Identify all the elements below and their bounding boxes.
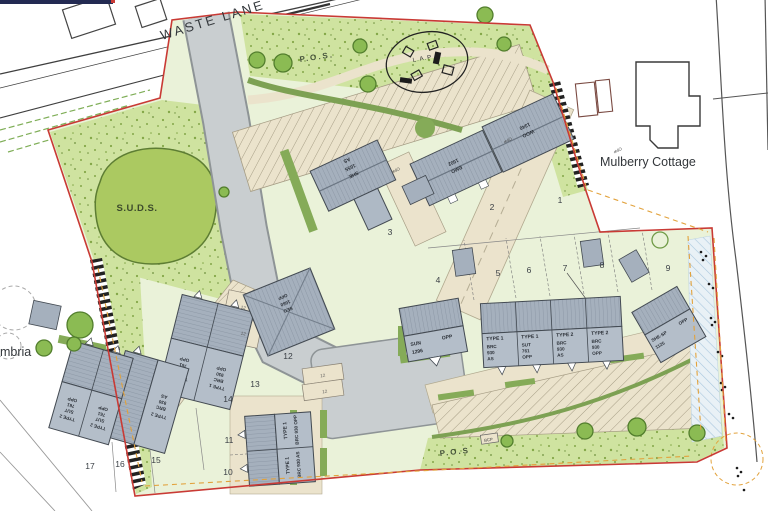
svg-text:BRC: BRC	[556, 340, 567, 346]
plot-number-2: 2	[490, 202, 495, 212]
plot-number-10: 10	[223, 467, 233, 477]
site-plan-page: SHE 1655 AS BMO 1502 WOO 1340 SUN	[0, 0, 768, 511]
svg-text:TYPE 1: TYPE 1	[486, 336, 504, 343]
svg-text:930: 930	[557, 346, 565, 351]
svg-text:930: 930	[487, 350, 495, 355]
bcp-store: BCP	[480, 433, 498, 444]
plot-number-7: 7	[563, 263, 568, 273]
plot-number-11: 11	[225, 435, 234, 445]
svg-text:BRC: BRC	[487, 344, 498, 350]
svg-text:TYPE 1: TYPE 1	[521, 334, 539, 341]
svg-text:761: 761	[522, 348, 530, 353]
plot-number-9: 9	[666, 263, 671, 273]
cumbria-partial-label: mbria	[0, 345, 31, 359]
plot-number-14: 14	[223, 394, 233, 404]
svg-text:AS: AS	[557, 352, 564, 357]
mulberry-cottage-label: Mulberry Cottage	[600, 155, 696, 169]
svg-text:930: 930	[592, 345, 600, 350]
svg-text:TYPE 1: TYPE 1	[285, 456, 292, 474]
outbuilding	[595, 79, 612, 112]
svg-text:BRC: BRC	[591, 338, 602, 344]
outbuilding	[575, 82, 597, 117]
titlebar-fragment-red	[111, 0, 115, 3]
plot-number-17: 17	[85, 461, 95, 471]
plot-number-16: 16	[115, 459, 125, 469]
svg-text:TYPE 2: TYPE 2	[556, 332, 574, 339]
plot-number-8: 8	[600, 260, 605, 270]
svg-text:TYPE 2: TYPE 2	[591, 330, 609, 337]
plot-number-12: 12	[283, 351, 293, 361]
svg-text:OPP: OPP	[522, 354, 532, 360]
svg-text:SUT: SUT	[522, 342, 532, 347]
house-pair-10-11: TYPE 1 BRC 930 OPP TYPE 1 BRC 930 AS	[237, 412, 316, 487]
site-plan-drawing: SHE 1655 AS BMO 1502 WOO 1340 SUN	[0, 0, 768, 511]
svg-text:OPP: OPP	[592, 350, 602, 356]
plot-number-1: 1	[558, 195, 563, 205]
titlebar-fragment	[0, 0, 113, 4]
plot-number-4: 4	[436, 275, 441, 285]
plot-number-5: 5	[496, 268, 501, 278]
plot-number-13: 13	[250, 379, 260, 389]
plot-number-6: 6	[527, 265, 532, 275]
plot-number-15: 15	[151, 455, 161, 465]
suds-label: S.U.D.S.	[117, 203, 158, 214]
svg-text:TYPE 1: TYPE 1	[282, 422, 289, 440]
svg-text:AS: AS	[487, 356, 494, 361]
plot-number-3: 3	[388, 227, 393, 237]
